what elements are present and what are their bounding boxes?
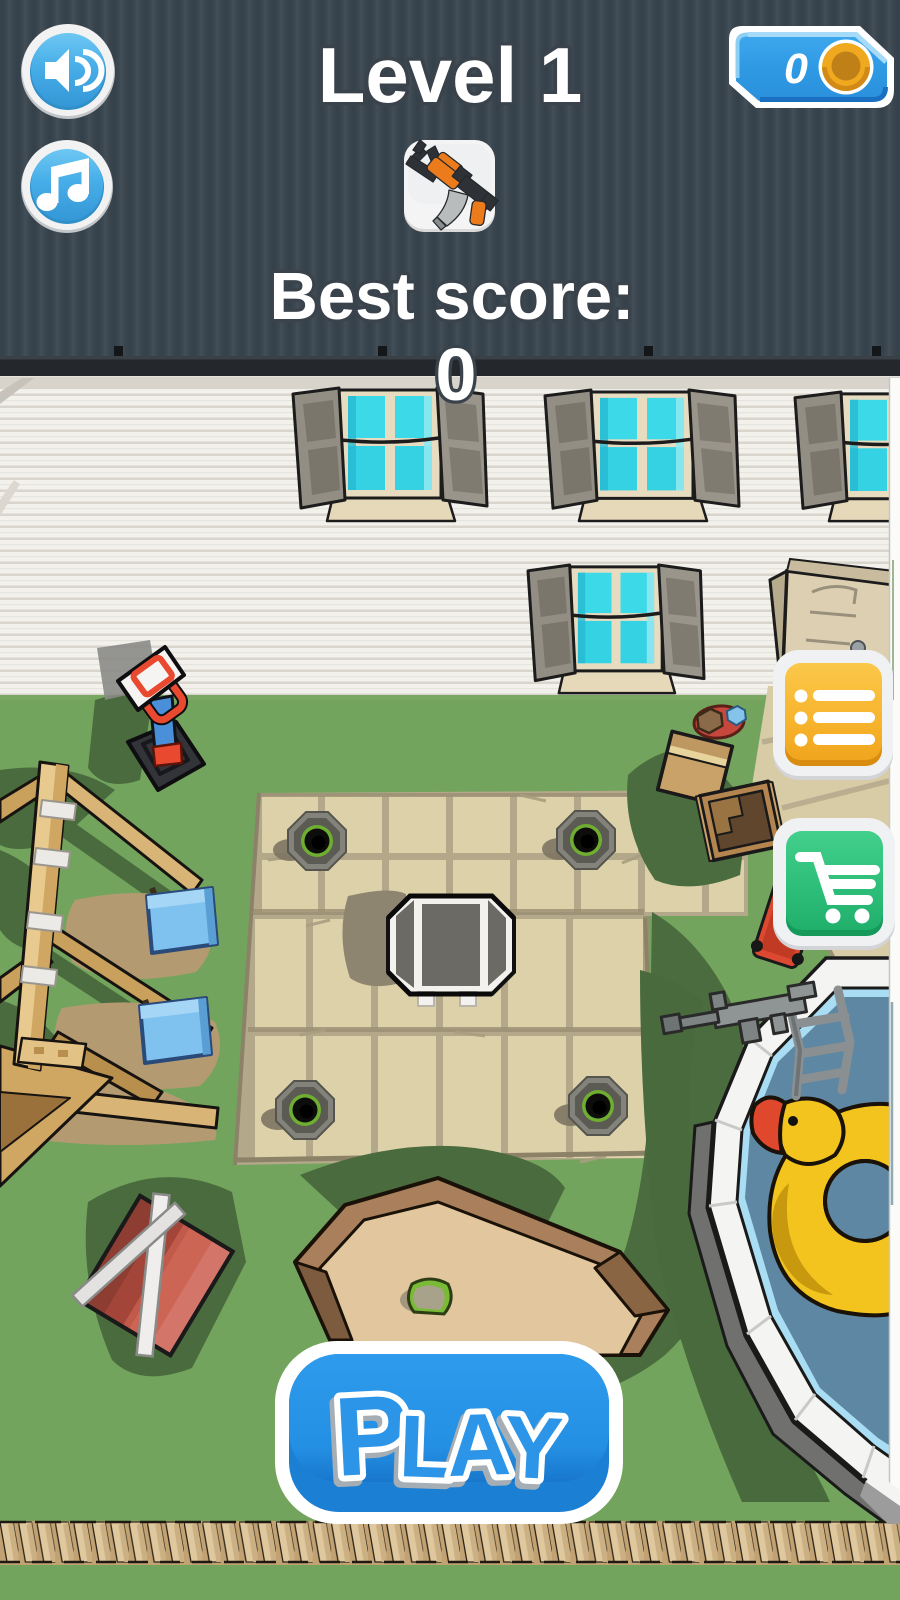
svg-text:Y: Y [501,1397,565,1499]
svg-text:0: 0 [784,45,808,93]
svg-text:Level 1: Level 1 [318,31,583,119]
svg-text:0: 0 [435,333,476,416]
svg-text:Best score:: Best score: [270,259,635,334]
